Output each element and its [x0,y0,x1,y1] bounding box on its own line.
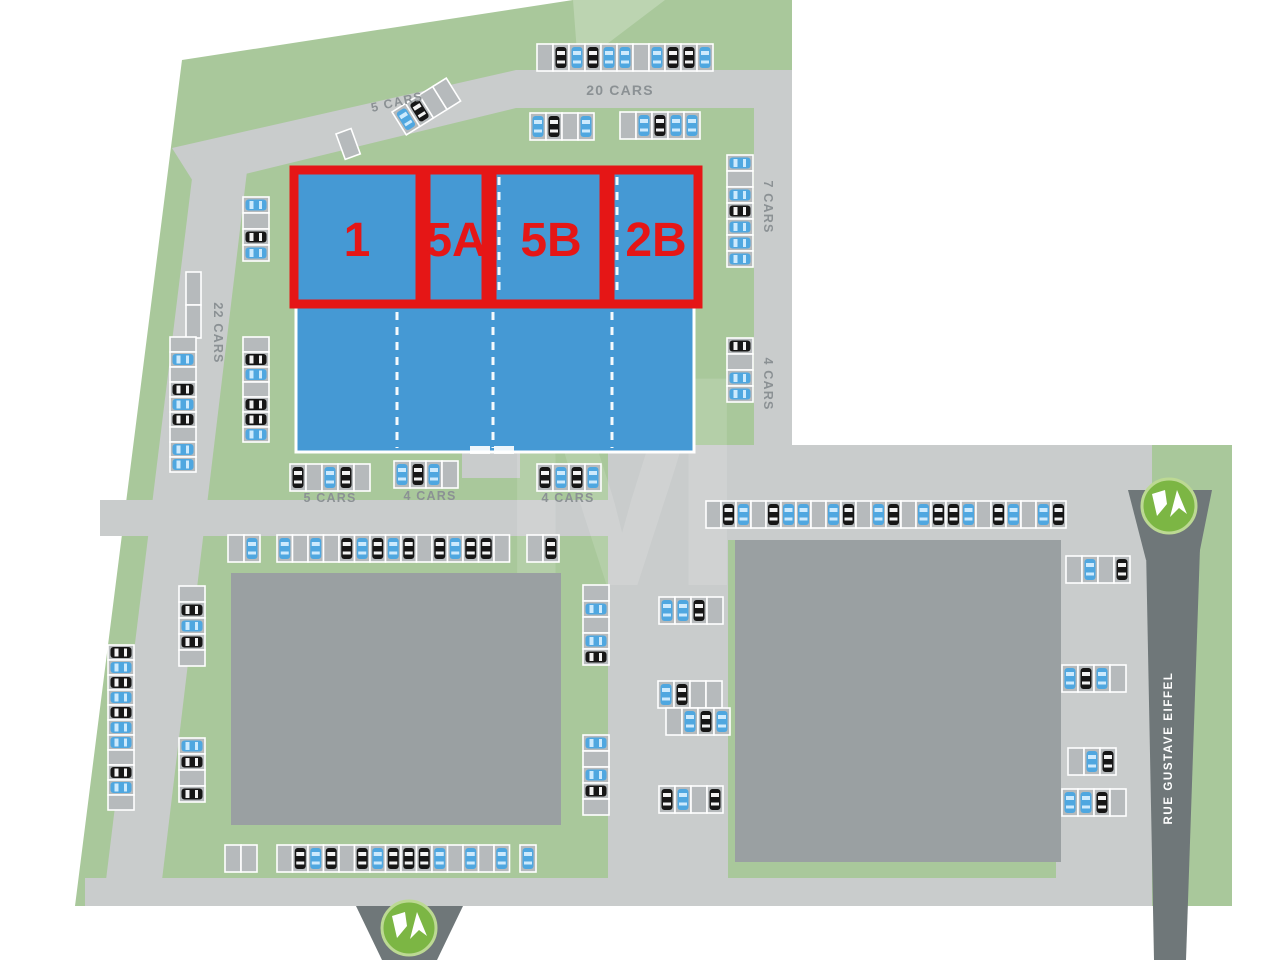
parking-stall [633,44,649,71]
car-blue-icon [783,504,794,525]
car-window [467,852,475,856]
parking-count-label: 20 CARS [586,82,654,98]
car-window [124,739,127,747]
car-blue-icon [182,741,203,752]
car-window [718,715,726,719]
parking-row [225,845,257,872]
car-black-icon [111,677,132,688]
car-window [669,51,677,55]
car-window [800,508,808,512]
parking-stall [562,113,578,140]
parking-row [727,155,753,267]
car-black-icon [668,47,679,68]
car-blue-icon [246,369,267,380]
car-blue-icon [388,538,399,559]
parking-stall [494,535,510,562]
car-window [685,51,693,55]
car-window [436,552,444,555]
car-window [115,739,119,747]
parking-stall [442,461,458,488]
car-window [186,416,189,424]
car-black-icon [677,684,688,705]
parking-stall [243,382,269,397]
car-window [524,852,532,856]
parking-stall [324,535,340,562]
car-window [875,508,883,512]
car-window [374,542,382,546]
car-window [1082,796,1090,800]
car-window [312,552,320,555]
car-window [186,461,189,469]
parking-row [170,337,196,472]
parking-stall [179,650,205,666]
car-black-icon [586,652,607,663]
car-window [115,724,119,732]
parking-stall [1066,556,1082,583]
car-window [547,542,555,546]
car-window [830,518,838,521]
car-black-icon [655,115,666,136]
parking-row [179,738,205,802]
car-blue-icon [1087,751,1098,772]
car-window [965,508,973,512]
car-blue-icon [173,459,194,470]
car-window [195,606,198,614]
car-window [1104,765,1112,768]
parking-stall [527,535,543,562]
car-window [1082,682,1090,685]
car-window [1088,765,1096,768]
car-window [678,688,686,692]
car-blue-icon [738,504,749,525]
parking-row [243,337,269,442]
car-black-icon [465,538,476,559]
car-window [405,552,413,555]
car-window [1066,796,1074,800]
car-window [430,468,438,472]
car-window [250,356,254,364]
parking-row [277,535,510,562]
car-window [701,51,709,55]
car-blue-icon [182,621,203,632]
car-window [115,664,119,672]
car-window [389,542,397,546]
parking-row [1066,556,1130,583]
car-window [995,518,1003,521]
car-blue-icon [604,47,615,68]
car-blue-icon [246,248,267,259]
car-window [679,604,687,608]
parking-stall [1110,789,1126,816]
car-window [734,207,738,215]
parking-row [727,338,753,402]
car-window [663,614,671,617]
car-window [467,552,475,555]
car-window [1040,508,1048,512]
car-window [124,679,127,687]
unit-section-2b[interactable]: 2B [610,170,698,304]
car-blue-icon [678,600,689,621]
car-window [1088,755,1096,759]
car-window [743,159,746,167]
car-window [589,481,597,484]
car-window [467,862,475,865]
car-window [482,552,490,555]
car-black-icon [993,504,1004,525]
car-window [688,119,696,123]
parking-stall [901,501,916,528]
car-window [605,51,613,55]
car-window [656,129,664,132]
car-window [414,468,422,472]
parking-stall [583,617,609,633]
car-black-icon [588,47,599,68]
car-black-icon [933,504,944,525]
car-window [740,508,748,512]
car-window [467,542,475,546]
car-window [115,769,119,777]
parking-count-label: 4 CARS [403,489,456,503]
car-window [281,542,289,546]
car-window [890,518,898,521]
car-blue-icon [1008,504,1019,525]
car-window [965,518,973,521]
car-window [405,542,413,546]
car-window [312,862,320,865]
car-window [186,446,189,454]
car-window [398,468,406,472]
parking-stall [583,585,609,601]
parking-stall [1098,556,1114,583]
car-window [115,649,119,657]
car-window [1066,682,1074,685]
car-blue-icon [556,467,567,488]
car-window [1055,508,1063,512]
car-blue-icon [372,848,383,869]
car-window [294,481,302,484]
car-blue-icon [1097,668,1108,689]
parking-stall [666,708,682,735]
car-blue-icon [111,662,132,673]
car-black-icon [481,538,492,559]
car-blue-icon [465,848,476,869]
car-window [662,688,670,692]
car-window [725,518,733,521]
car-window [186,606,190,614]
car-window [743,390,746,398]
car-window [672,119,680,123]
car-blue-icon [661,684,672,705]
car-window [685,61,693,64]
car-blue-icon [828,504,839,525]
parking-stall [306,464,322,491]
car-window [662,698,670,701]
car-window [124,784,127,792]
car-window [890,508,898,512]
site-plan: M 1 5A 5B 2B 20 CARS5 CARS7 CARS22 CARS4… [0,0,1280,960]
car-window [414,478,422,481]
car-blue-icon [586,770,607,781]
car-window [250,233,254,241]
va-logo-street-entrance-icon [1142,479,1196,533]
car-black-icon [710,789,721,810]
car-window [259,356,262,364]
car-black-icon [111,647,132,658]
car-window [374,552,382,555]
parking-stall [228,535,244,562]
parking-stall [583,799,609,815]
street-name-label: RUE GUSTAVE EIFFEL [1163,672,1175,825]
car-window [557,481,565,484]
car-black-icon [434,538,445,559]
car-window [686,725,694,728]
parking-row [1062,789,1126,816]
warehouse-southeast [735,540,1061,862]
parking-row [658,681,722,708]
car-window [640,129,648,132]
car-window [259,233,262,241]
car-window [718,725,726,728]
car-window [920,508,928,512]
car-window [186,638,190,646]
car-window [590,739,594,747]
car-black-icon [1097,792,1108,813]
car-window [711,803,719,806]
car-window [186,386,189,394]
parking-row [537,464,601,491]
car-window [358,552,366,555]
logo-circle [382,901,436,955]
car-window [1086,573,1094,576]
parking-stall [1021,501,1036,528]
car-window [177,446,181,454]
unit-section-5b[interactable]: 5B [492,170,604,304]
car-black-icon [182,789,203,800]
car-window [250,431,254,439]
car-window [195,742,198,750]
car-window [420,852,428,856]
parking-stall [479,845,495,872]
parking-stall [727,354,753,370]
car-window [1098,682,1106,685]
car-window [845,508,853,512]
car-window [296,852,304,856]
car-window [195,790,198,798]
car-black-icon [246,354,267,365]
car-window [590,771,594,779]
car-window [186,742,190,750]
car-window [115,709,119,717]
warehouse-hall [296,306,694,454]
car-window [1082,806,1090,809]
car-window [312,542,320,546]
unit-5a-label: 5A [425,214,486,267]
car-window [590,787,594,795]
car-window [557,471,565,475]
unit-1-label: 1 [344,214,371,267]
car-window [430,478,438,481]
car-blue-icon [730,389,751,400]
car-window [124,694,127,702]
car-blue-icon [247,538,258,559]
parking-stall [1110,665,1126,692]
car-window [935,508,943,512]
car-black-icon [586,786,607,797]
car-window [582,130,590,133]
car-window [195,758,198,766]
car-window [688,129,696,132]
car-window [420,862,428,865]
car-blue-icon [581,116,592,137]
car-black-icon [326,848,337,869]
car-window [358,852,366,856]
car-window [734,390,738,398]
parking-row [108,645,134,810]
car-window [589,61,597,64]
car-black-icon [295,848,306,869]
car-blue-icon [310,538,321,559]
car-window [124,649,127,657]
va-logo-bottom-entrance-icon [382,901,436,955]
car-window [711,793,719,797]
car-window [743,207,746,215]
warehouse-southwest [231,573,561,825]
car-window [1098,806,1106,809]
car-window [498,852,506,856]
parking-count-label: 5 CARS [303,491,356,505]
car-window [389,552,397,555]
parking-stall [170,337,196,352]
car-blue-icon [798,504,809,525]
car-black-icon [1103,751,1114,772]
car-black-icon [1081,668,1092,689]
parking-stall [277,845,293,872]
car-window [590,605,594,613]
car-blue-icon [1038,504,1049,525]
car-window [1040,518,1048,521]
car-window [653,51,661,55]
car-blue-icon [1065,792,1076,813]
car-window [259,201,262,209]
car-blue-icon [325,467,336,488]
car-blue-icon [652,47,663,68]
car-black-icon [662,789,673,810]
car-blue-icon [173,444,194,455]
car-window [702,725,710,728]
car-window [950,508,958,512]
car-window [743,342,746,350]
unit-section-5a[interactable]: 5A [425,170,486,304]
car-black-icon [1053,504,1064,525]
car-window [248,552,256,555]
parking-row [277,845,510,872]
car-window [177,461,181,469]
car-window [534,130,542,133]
car-window [599,653,602,661]
car-black-icon [694,600,705,621]
car-window [734,255,738,263]
parking-stall [751,501,766,528]
car-black-icon [572,467,583,488]
car-window [599,605,602,613]
car-window [695,604,703,608]
car-blue-icon [1065,668,1076,689]
car-window [1055,518,1063,521]
car-black-icon [341,538,352,559]
car-window [177,356,181,364]
car-window [115,679,119,687]
parking-row [1062,665,1126,692]
car-window [679,614,687,617]
car-blue-icon [687,115,698,136]
car-window [590,653,594,661]
parking-row [243,197,269,261]
car-black-icon [388,848,399,869]
car-window [743,239,746,247]
car-window [663,793,671,797]
car-window [250,201,254,209]
parking-stall [241,845,257,872]
car-window [436,862,444,865]
car-black-icon [403,538,414,559]
car-window [186,790,190,798]
car-window [327,862,335,865]
car-blue-icon [111,737,132,748]
car-window [186,622,190,630]
car-window [124,664,127,672]
car-black-icon [701,711,712,732]
parking-row [620,112,700,139]
car-window [557,61,565,64]
parking-stall [354,464,370,491]
car-blue-icon [586,738,607,749]
parking-stall [179,770,205,786]
car-window [734,191,738,199]
car-window [195,622,198,630]
car-window [358,542,366,546]
car-window [734,239,738,247]
car-blue-icon [450,538,461,559]
parking-stall [293,535,309,562]
car-window [672,129,680,132]
car-blue-icon [111,782,132,793]
car-window [482,542,490,546]
car-window [686,715,694,719]
parking-stall [186,272,201,305]
car-window [547,552,555,555]
car-window [743,374,746,382]
car-window [259,431,262,439]
car-black-icon [730,341,751,352]
car-window [1066,672,1074,676]
unit-section-1[interactable]: 1 [294,170,420,304]
car-window [250,401,254,409]
car-window [550,120,558,124]
car-window [679,803,687,806]
car-window [541,481,549,484]
parking-row [583,585,609,665]
car-blue-icon [1081,792,1092,813]
parking-row [520,845,536,872]
car-blue-icon [639,115,650,136]
car-blue-icon [963,504,974,525]
unit-5b-label: 5B [520,214,581,267]
parking-stall [417,535,433,562]
car-window [599,739,602,747]
car-window [935,518,943,521]
car-window [343,552,351,555]
car-blue-icon [662,600,673,621]
